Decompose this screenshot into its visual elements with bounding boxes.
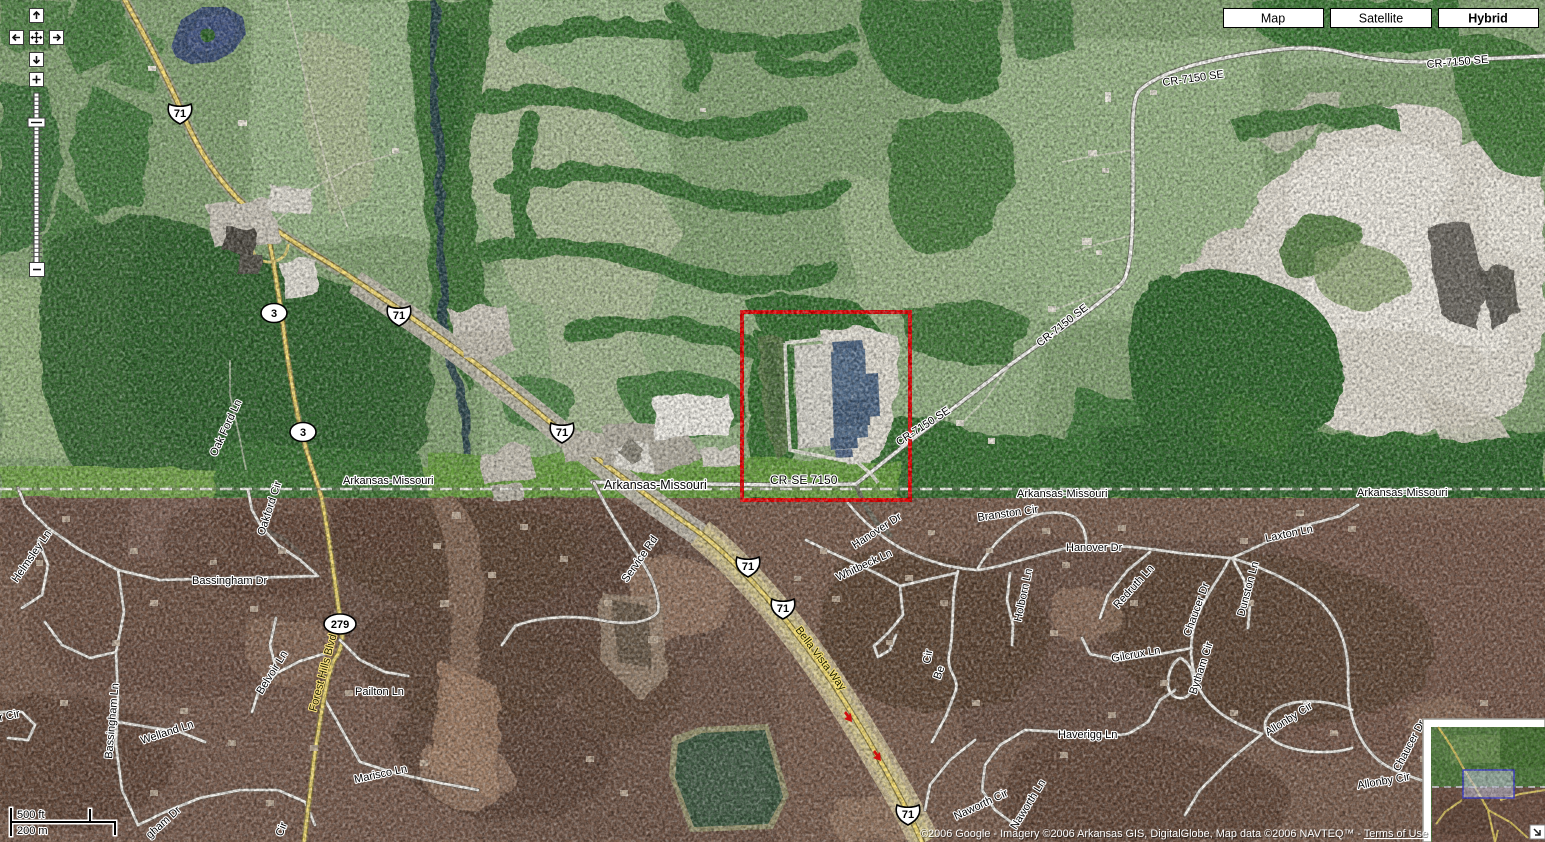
svg-text:Arkansas-Missouri: Arkansas-Missouri	[604, 478, 707, 492]
svg-text:71: 71	[902, 809, 914, 821]
svg-text:71: 71	[556, 427, 568, 439]
svg-text:Arkansas-Missouri: Arkansas-Missouri	[343, 475, 433, 487]
svg-text:71: 71	[742, 561, 754, 573]
svg-text:279: 279	[331, 619, 349, 631]
svg-text:3: 3	[300, 427, 306, 439]
svg-text:200 m: 200 m	[17, 825, 48, 837]
svg-text:Satellite: Satellite	[1359, 12, 1404, 26]
svg-text:CR-SE 7150: CR-SE 7150	[770, 473, 838, 487]
svg-text:Arkansas-Missouri: Arkansas-Missouri	[1017, 488, 1107, 500]
svg-text:71: 71	[393, 310, 405, 322]
svg-text:71: 71	[777, 603, 789, 615]
svg-text:Map: Map	[1261, 12, 1285, 26]
svg-text:Hanover Dr: Hanover Dr	[1066, 542, 1123, 554]
svg-text:Cir: Cir	[921, 648, 935, 664]
svg-text:Bassingham Dr: Bassingham Dr	[192, 575, 268, 587]
svg-text:©2006 Google - Imagery ©2006 A: ©2006 Google - Imagery ©2006 Arkansas GI…	[920, 828, 1428, 840]
svg-text:Hybrid: Hybrid	[1468, 12, 1508, 26]
svg-text:Pailton Ln: Pailton Ln	[355, 686, 404, 698]
svg-text:3: 3	[271, 308, 277, 320]
svg-text:Arkansas-Missouri: Arkansas-Missouri	[1357, 487, 1447, 499]
svg-text:Haverigg Ln: Haverigg Ln	[1058, 729, 1117, 741]
svg-text:71: 71	[174, 108, 186, 120]
svg-text:500 ft: 500 ft	[17, 809, 45, 821]
